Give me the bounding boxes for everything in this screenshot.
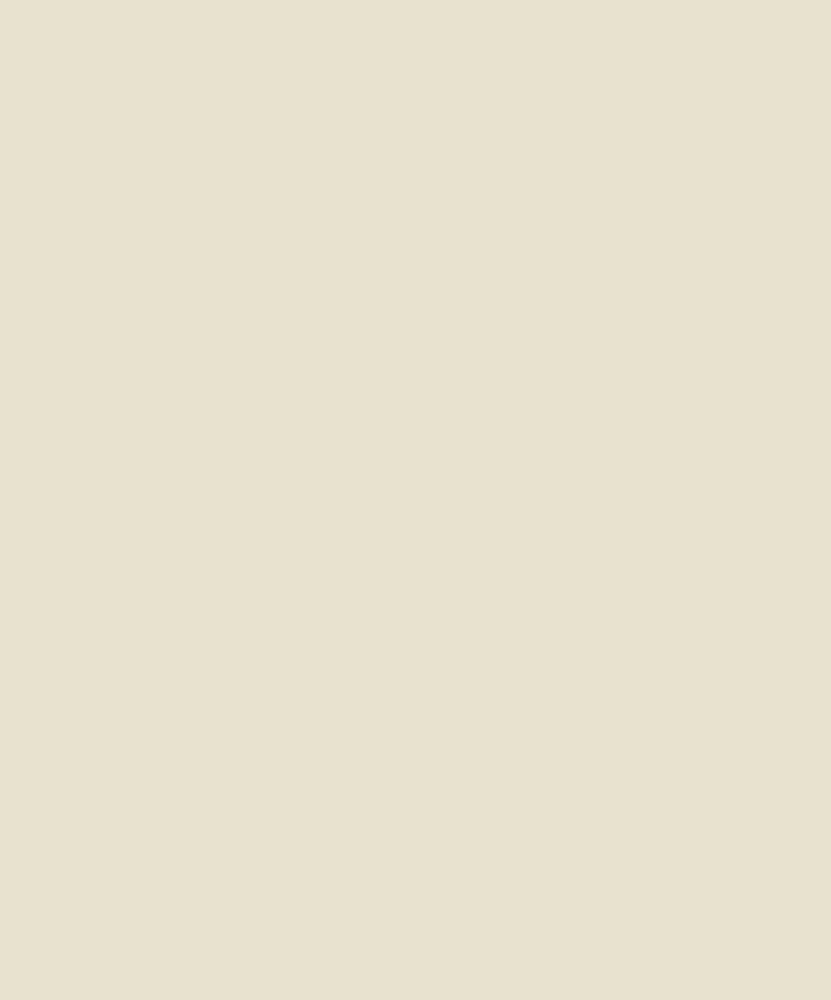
- park-plan-svg: [0, 0, 831, 1000]
- park-plan-scan: [0, 0, 831, 1000]
